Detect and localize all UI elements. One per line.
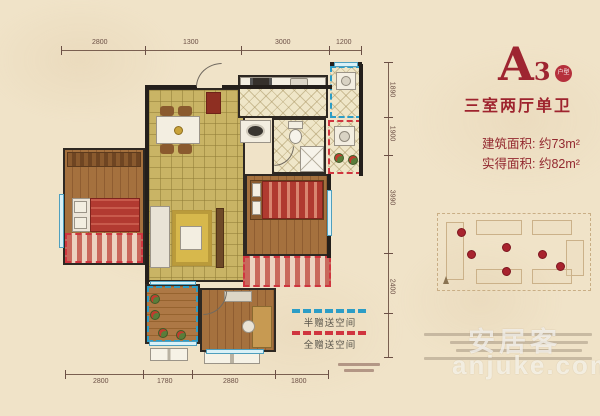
legend-half-gift-dash: [292, 309, 368, 313]
washer-door: [339, 131, 350, 142]
plan-footnote-line: [338, 363, 380, 366]
dim-tick: [384, 313, 393, 314]
chair: [242, 320, 255, 333]
area-info: 建筑面积: 约73m² 实得面积: 约82m²: [482, 134, 580, 174]
wall: [359, 64, 363, 176]
bed-blanket: [262, 181, 323, 219]
unit-location-dot: [467, 250, 476, 259]
unit-name: A3 户型: [392, 44, 572, 86]
dim-tick: [361, 46, 362, 55]
sofa: [150, 206, 170, 268]
ac-platform: [150, 348, 188, 361]
dim-tick: [145, 46, 146, 55]
dim-tick: [329, 46, 330, 55]
site-key-plan: [437, 213, 591, 291]
dim-right-4: 2400: [388, 279, 395, 295]
dim-bottom-2: 1780: [157, 378, 173, 385]
window: [327, 190, 332, 236]
coffee-table: [180, 226, 202, 250]
legend-half-gift-label: 半赠送空间: [285, 315, 375, 329]
balcony-plant: [158, 328, 168, 338]
dining-chair: [160, 144, 174, 154]
unit-subtitle: 三室两厅单卫: [392, 92, 572, 116]
entry-mat: [206, 92, 221, 114]
dim-tick: [384, 253, 393, 254]
gift-space-full-bay-window: [243, 256, 331, 287]
dim-top-2: 1300: [183, 39, 199, 46]
plan-footnote-line: [344, 369, 374, 372]
shower: [300, 146, 324, 172]
dim-right-2: 1900: [388, 126, 395, 142]
wall: [145, 85, 149, 284]
dim-tick: [275, 370, 276, 379]
window: [59, 194, 64, 248]
building-outline: [476, 220, 522, 235]
unit-location-dot: [538, 250, 547, 259]
unit-type-badge: 户型: [555, 65, 572, 82]
pillow: [252, 201, 261, 215]
balcony-plant: [150, 310, 160, 320]
gift-space-full-bedroom-left: [65, 233, 143, 263]
dining-chair: [178, 144, 192, 154]
actual-area: 实得面积: 约82m²: [482, 154, 580, 174]
toilet-tank: [288, 121, 303, 129]
listing-floorplan-card: 2800 1300 3000 1200 1890 1900 3990 2400 …: [0, 0, 600, 416]
desk: [252, 306, 272, 348]
dim-top-3: 3000: [275, 39, 291, 46]
dining-chair: [178, 106, 192, 116]
dim-tick: [384, 357, 393, 358]
unit-location-dot: [502, 243, 511, 252]
wardrobe: [67, 152, 141, 167]
dim-tick: [61, 46, 62, 55]
balcony-plant: [150, 294, 160, 304]
bed-blanket: [90, 198, 140, 232]
dim-line-bottom: [65, 374, 328, 375]
plant: [334, 153, 344, 163]
unit-location-dot: [457, 228, 466, 237]
unit-location-dot: [502, 267, 511, 276]
unit-location-dot: [556, 262, 565, 271]
entry-door-arc: [196, 63, 222, 87]
unit-title: A3 户型 三室两厅单卫: [392, 44, 572, 116]
pillow: [252, 183, 261, 197]
dining-chair: [160, 106, 174, 116]
dim-tick: [241, 46, 242, 55]
window: [206, 349, 264, 354]
toilet-bowl: [289, 129, 302, 144]
pillow: [74, 217, 87, 229]
balcony-plant: [176, 330, 186, 340]
window: [334, 62, 358, 67]
window: [149, 341, 197, 346]
dim-tick: [384, 117, 393, 118]
building-outline: [532, 269, 572, 284]
legend-full-gift-dash: [292, 331, 368, 335]
dim-tick: [143, 370, 144, 379]
legend-full-gift-label: 全赠送空间: [285, 337, 375, 351]
dim-tick: [65, 370, 66, 379]
building-outline: [476, 269, 522, 284]
watermark-domain: anjuke.com: [452, 350, 600, 381]
dim-right-3: 3990: [388, 190, 395, 206]
washing-machine-door: [341, 76, 351, 86]
legend-full-gift: 全赠送空间: [285, 331, 375, 351]
wall: [222, 85, 332, 89]
dim-tick: [192, 370, 193, 379]
legend-half-gift: 半赠送空间: [285, 309, 375, 329]
table-centerpiece: [174, 126, 183, 135]
dim-bottom-4: 1800: [291, 378, 307, 385]
pillow: [74, 201, 87, 213]
dim-tick: [384, 155, 393, 156]
shelf: [224, 291, 252, 302]
tv-cabinet: [216, 208, 224, 268]
unit-number: 3: [534, 57, 551, 86]
built-area: 建筑面积: 约73m²: [482, 134, 580, 154]
wash-basin: [246, 124, 265, 138]
building-outline: [532, 220, 572, 235]
dim-bottom-1: 2800: [93, 378, 109, 385]
dim-top-4: 1200: [336, 39, 352, 46]
north-arrow-icon: [443, 276, 449, 284]
floor-plan: 2800 1300 3000 1200 1890 1900 3990 2400 …: [0, 0, 420, 416]
dim-top-1: 2800: [92, 39, 108, 46]
dim-tick: [328, 370, 329, 379]
dim-bottom-3: 2880: [223, 378, 239, 385]
plant: [348, 155, 358, 165]
unit-letter: A: [498, 37, 534, 91]
wall: [145, 85, 197, 89]
balcony-slider: [150, 281, 196, 285]
dim-line-top: [61, 50, 361, 51]
